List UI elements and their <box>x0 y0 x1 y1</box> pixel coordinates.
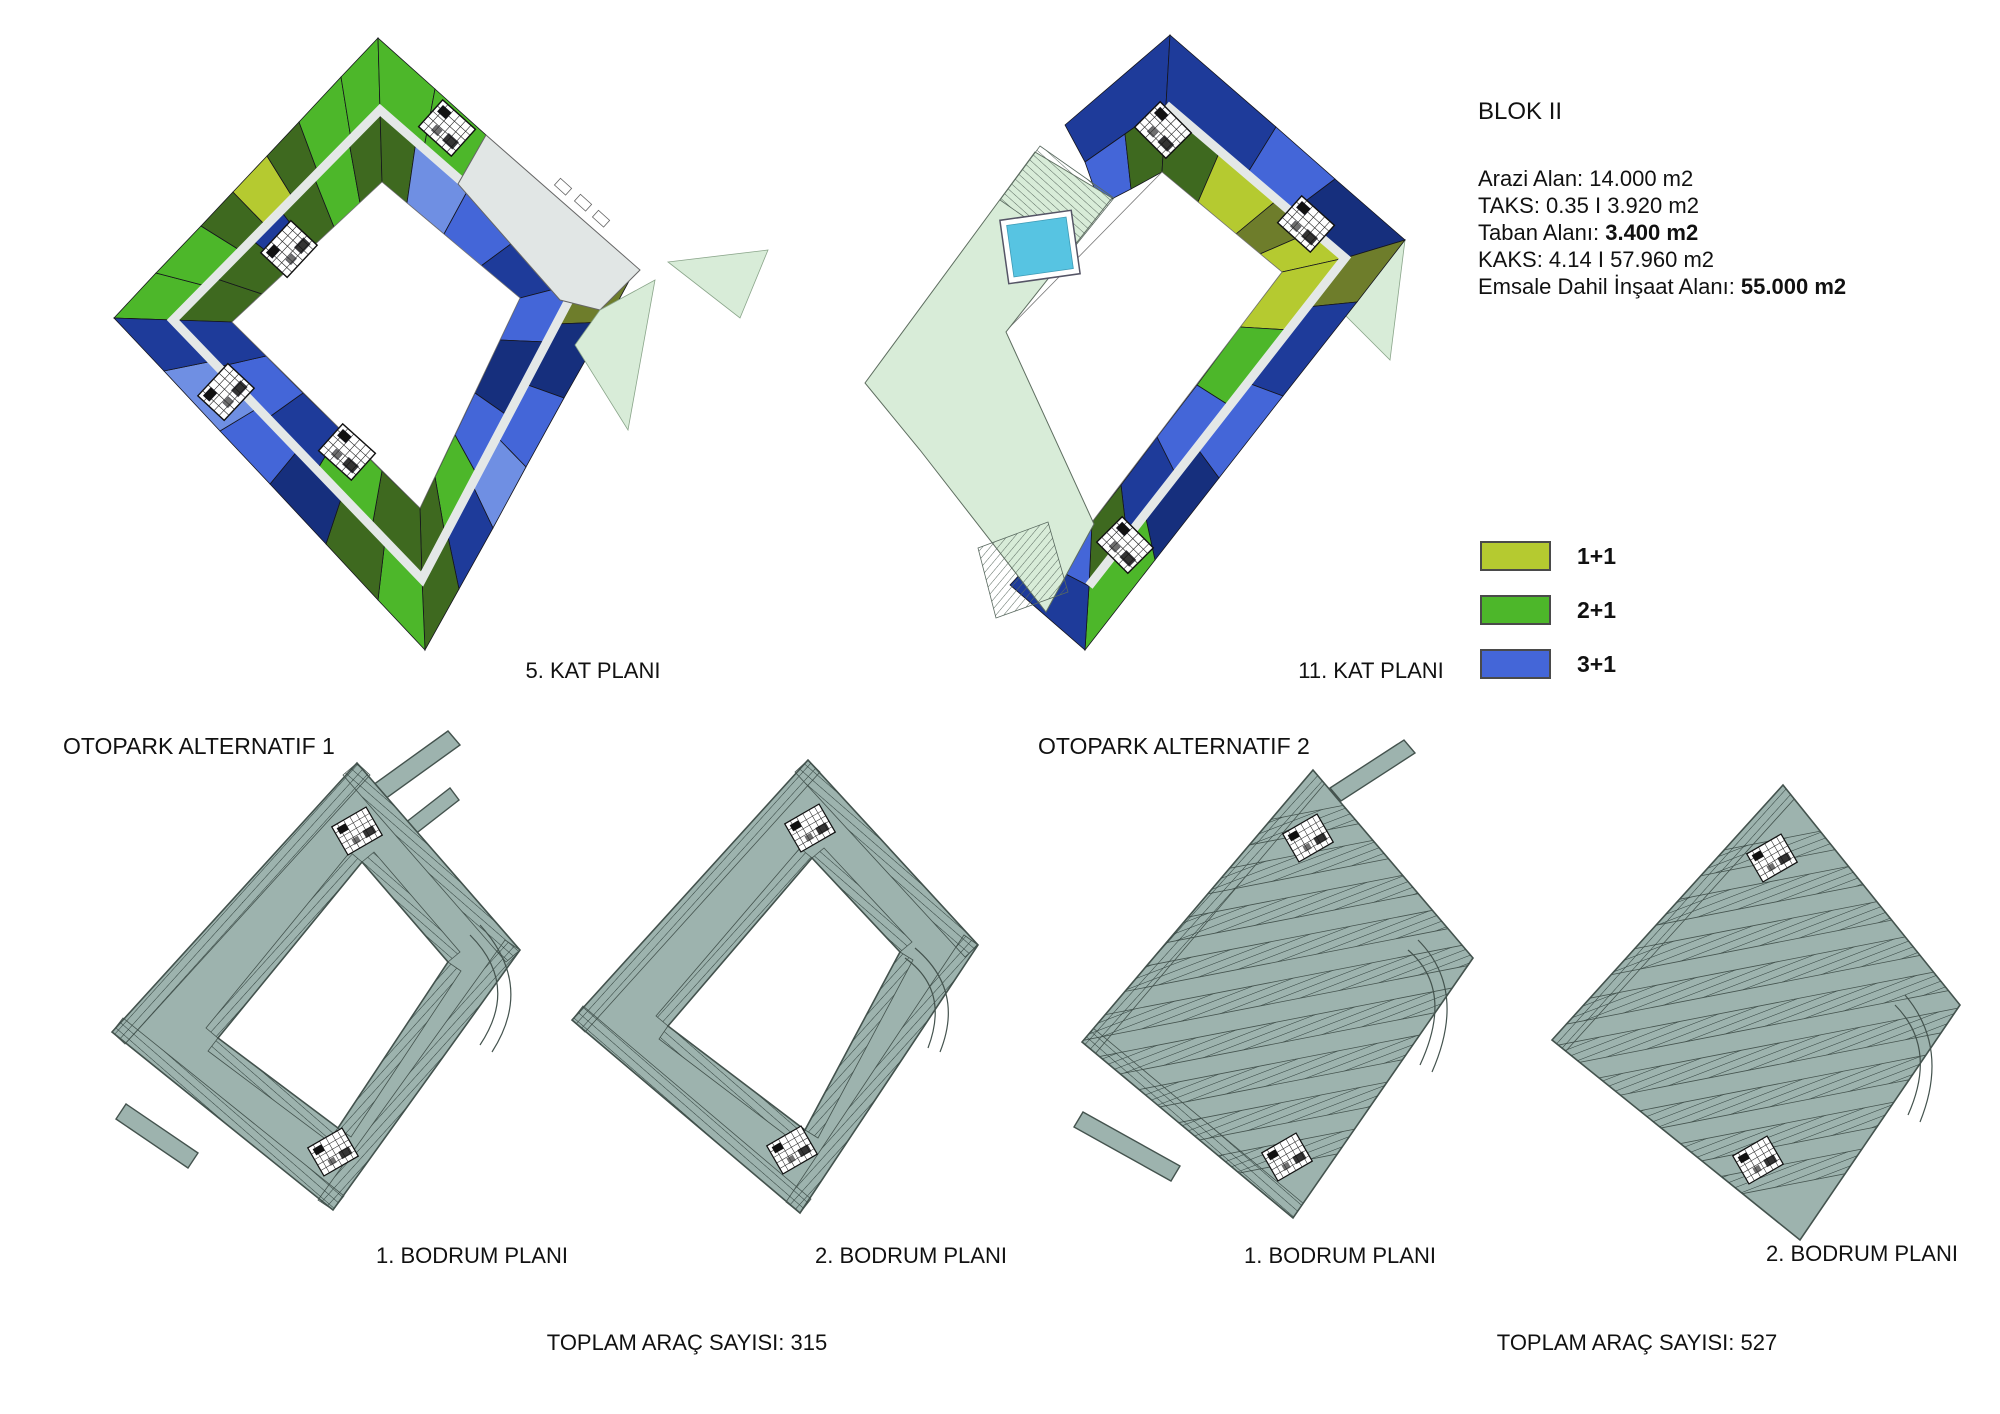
parking-alt1-bodrum1 <box>112 731 520 1210</box>
legend-label: 1+1 <box>1577 543 1616 570</box>
plan11-pale-wedge-west <box>668 250 768 318</box>
blok-info-panel: BLOK II Arazi Alan: 14.000 m2 TAKS: 0.35… <box>1478 98 1846 300</box>
floor-plan-11-kat <box>668 35 1405 650</box>
info-emsale: Emsale Dahil İnşaat Alanı: 55.000 m2 <box>1478 273 1846 300</box>
parking-alt1-bodrum2 <box>572 760 978 1213</box>
parking-alt2-bodrum2 <box>1518 785 2000 1240</box>
label-alt1-bodrum1: 1. BODRUM PLANI <box>332 1243 612 1269</box>
label-alt2-bodrum2: 2. BODRUM PLANI <box>1722 1241 2000 1267</box>
legend-swatch-2plus1 <box>1480 595 1551 625</box>
info-arazi-alan: Arazi Alan: 14.000 m2 <box>1478 165 1846 192</box>
legend-swatch-1plus1 <box>1480 541 1551 571</box>
label-kat11: 11. KAT PLANI <box>1241 658 1501 684</box>
info-taban-alani: Taban Alanı: 3.400 m2 <box>1478 219 1846 246</box>
label-alt1-bodrum2: 2. BODRUM PLANI <box>771 1243 1051 1269</box>
site-plan-sheet: BLOK II Arazi Alan: 14.000 m2 TAKS: 0.35… <box>0 0 2000 1414</box>
legend-item-2plus1: 2+1 <box>1480 594 1616 626</box>
info-kaks: KAKS: 4.14 I 57.960 m2 <box>1478 246 1846 273</box>
total-alt2: TOPLAM ARAÇ SAYISI: 527 <box>1397 1330 1877 1356</box>
title-otopark-alt1: OTOPARK ALTERNATIF 1 <box>63 733 335 760</box>
info-taks: TAKS: 0.35 I 3.920 m2 <box>1478 192 1846 219</box>
parking-alt2-bodrum1 <box>1029 740 1542 1218</box>
total-alt1: TOPLAM ARAÇ SAYISI: 315 <box>447 1330 927 1356</box>
label-alt2-bodrum1: 1. BODRUM PLANI <box>1200 1243 1480 1269</box>
label-kat5: 5. KAT PLANI <box>463 658 723 684</box>
legend-label: 3+1 <box>1577 651 1616 678</box>
title-otopark-alt2: OTOPARK ALTERNATIF 2 <box>1038 733 1310 760</box>
legend-label: 2+1 <box>1577 597 1616 624</box>
blok-title: BLOK II <box>1478 98 1846 125</box>
legend-item-1plus1: 1+1 <box>1480 540 1616 572</box>
floor-plan-5-kat <box>114 38 655 650</box>
plan11-pool <box>1000 210 1080 283</box>
